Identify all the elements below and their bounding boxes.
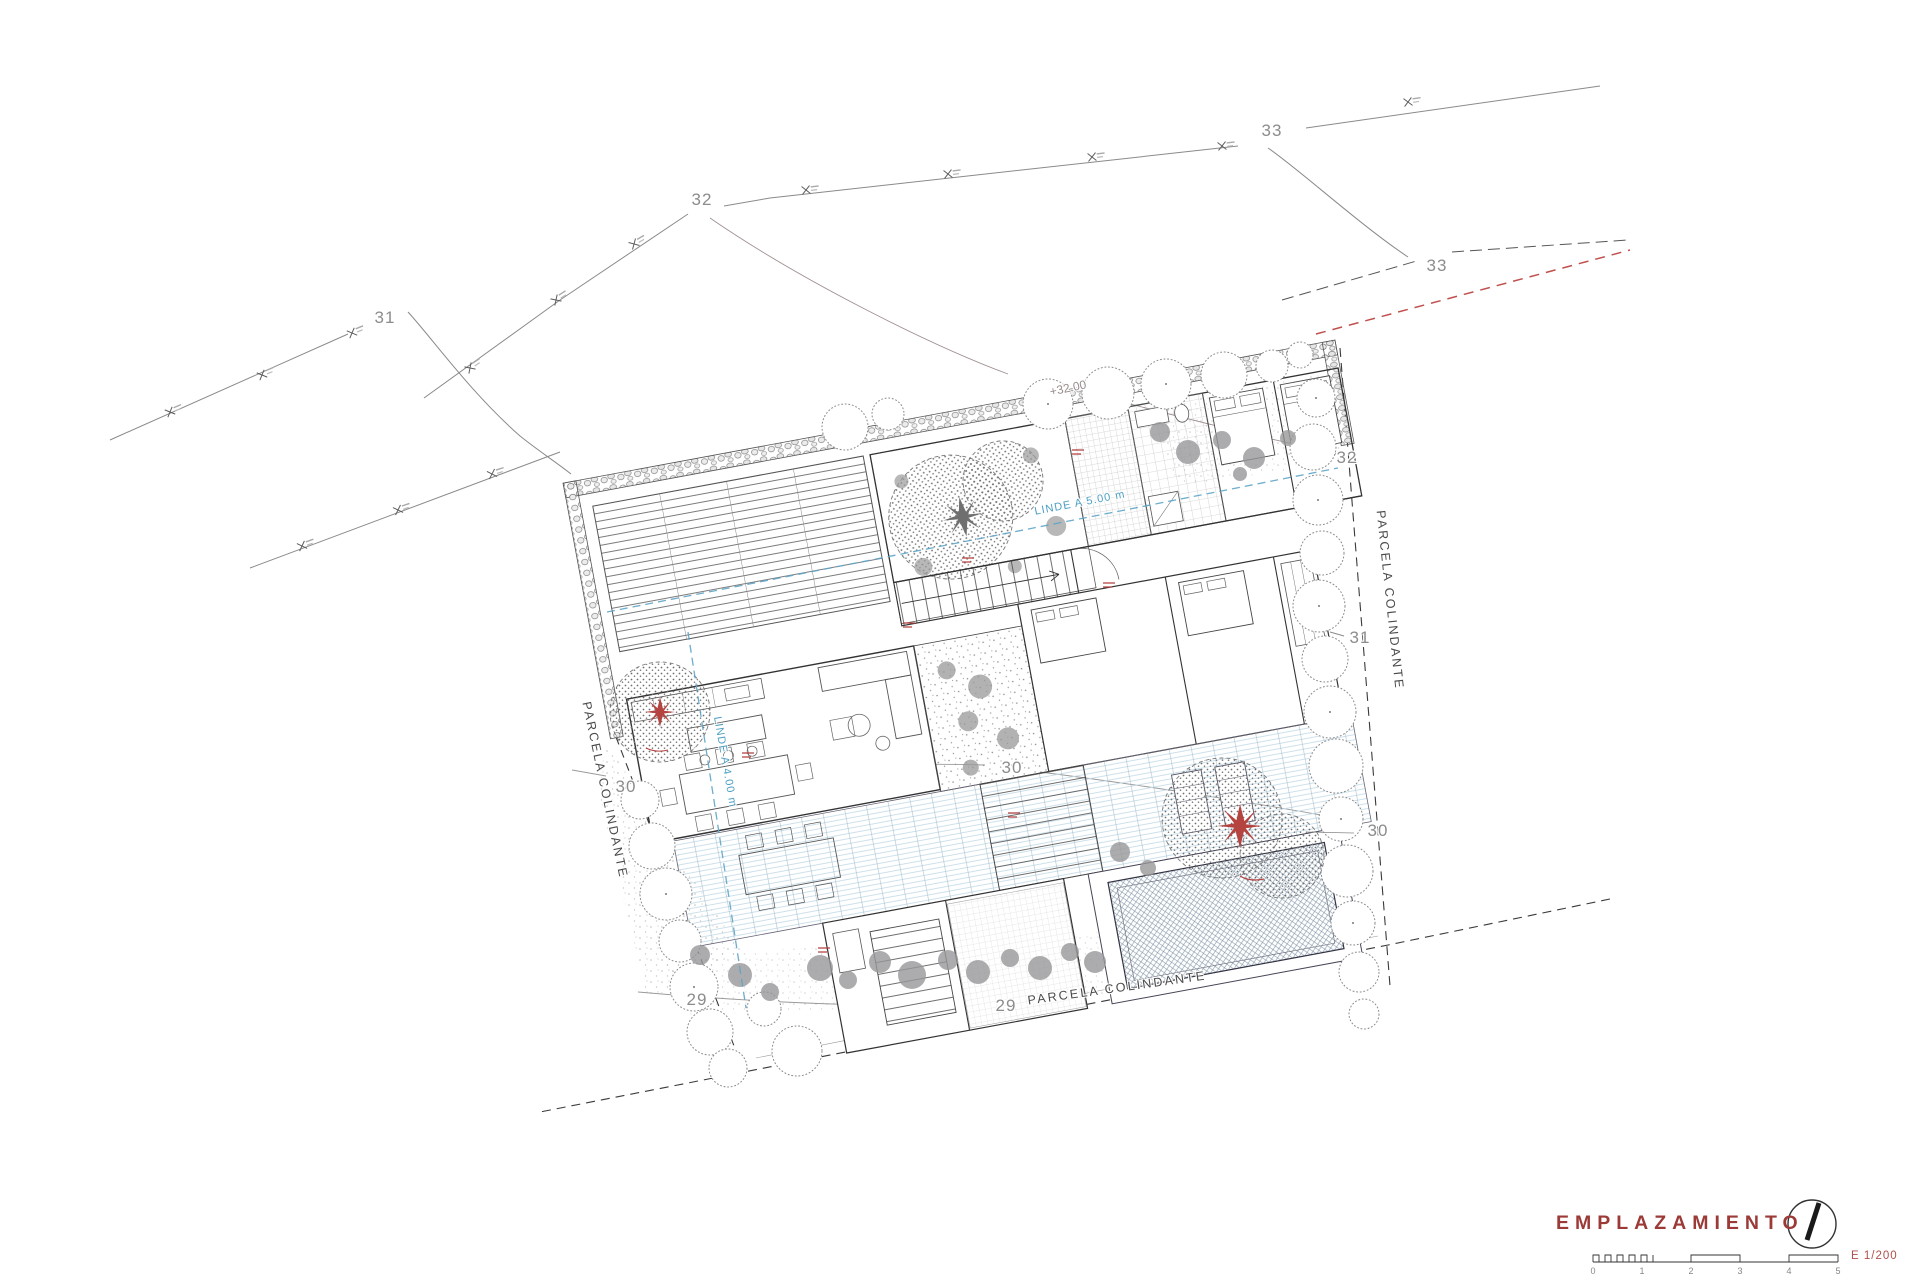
contour-stub-31-right xyxy=(1330,632,1344,636)
site-plan-sheet: 31 32 33 33 32 31 30 30 30 29 29 +32.00 … xyxy=(0,0,1920,1280)
boundary-line-upper xyxy=(1282,240,1628,300)
contour-label-32-top: 32 xyxy=(692,190,713,210)
bed-1 xyxy=(1209,388,1274,465)
pergola-terrace xyxy=(593,456,890,652)
red-reference-line xyxy=(1316,250,1630,334)
contour-label-30-left: 30 xyxy=(616,777,637,797)
contour-line-31 xyxy=(110,312,571,474)
tree-trunk-red xyxy=(1218,804,1262,848)
scale-label: E 1/200 xyxy=(1851,1250,1898,1262)
contour-line-30-upper xyxy=(250,452,560,568)
contour-label-33-top: 33 xyxy=(1262,121,1283,141)
scale-tick-2: 2 xyxy=(1685,1266,1697,1276)
contour-label-30-center: 30 xyxy=(1002,758,1023,778)
contour-label-30-right: 30 xyxy=(1368,821,1389,841)
contour-label-29-bottom: 29 xyxy=(996,996,1017,1016)
contour-branch-33 xyxy=(1268,148,1408,257)
tree-trunk-red-2 xyxy=(645,697,675,727)
contour-label-31-right: 31 xyxy=(1350,628,1371,648)
scale-tick-3: 3 xyxy=(1734,1266,1746,1276)
contour-line-32-33 xyxy=(424,86,1600,398)
contour-label-29-left: 29 xyxy=(687,990,708,1010)
deck-steps xyxy=(980,765,1103,890)
contour-label-32-right: 32 xyxy=(1337,448,1358,468)
scale-tick-0: 0 xyxy=(1587,1266,1599,1276)
sheet-title: EMPLAZAMIENTO xyxy=(1556,1212,1804,1235)
scale-tick-4: 4 xyxy=(1783,1266,1795,1276)
scale-tick-1: 1 xyxy=(1636,1266,1648,1276)
scale-tick-5: 5 xyxy=(1832,1266,1844,1276)
contour-label-31-left: 31 xyxy=(375,308,396,328)
scale-bar xyxy=(1593,1255,1838,1262)
site-plan-drawing xyxy=(0,0,1920,1280)
contour-label-33-right: 33 xyxy=(1427,256,1448,276)
